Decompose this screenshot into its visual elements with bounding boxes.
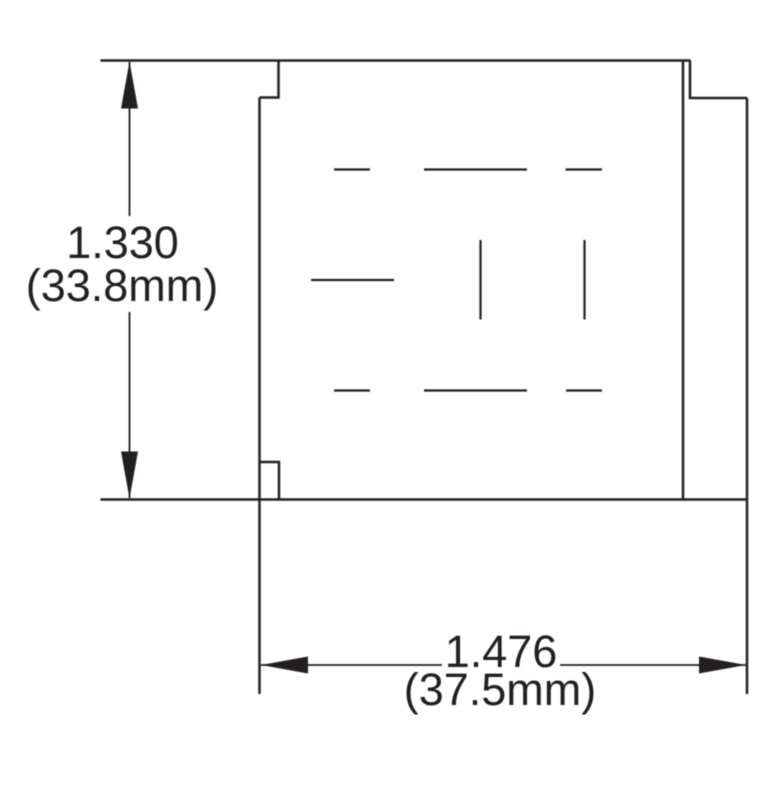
svg-text:(37.5mm): (37.5mm)	[404, 664, 597, 715]
svg-text:(33.8mm): (33.8mm)	[26, 260, 219, 311]
